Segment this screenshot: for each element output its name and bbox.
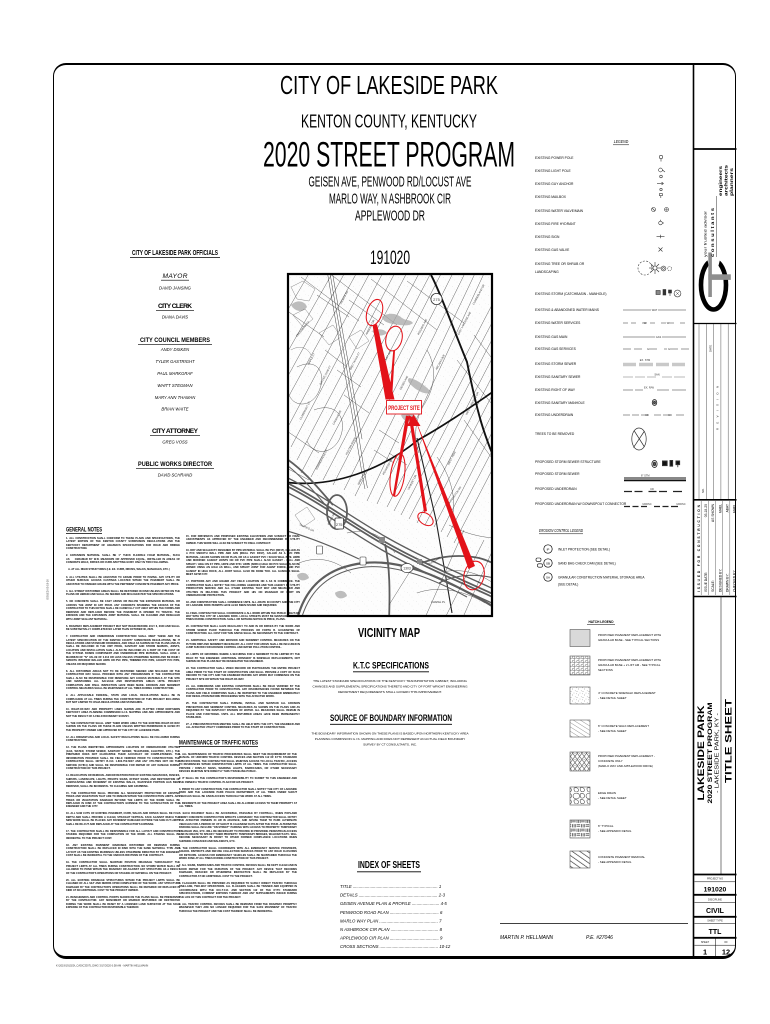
svg-text:EXISTING WATER SERVICES: EXISTING WATER SERVICES (535, 321, 581, 325)
svg-text:(MARLO WAY AND APPLEWOOD DRIVE: (MARLO WAY AND APPLEWOOD DRIVE) (598, 764, 653, 768)
svg-text:GEISEN AVENUE PLAN & PROFILE .: GEISEN AVENUE PLAN & PROFILE ...........… (340, 901, 447, 906)
svg-text:275: 275 (433, 297, 440, 302)
svg-text:SECTIONS: SECTIONS (598, 668, 613, 672)
svg-text:- SEE APPENDIX DETAIL: - SEE APPENDIX DETAIL (598, 860, 632, 864)
svg-text:your trusted advisor: your trusted advisor (704, 210, 708, 257)
svg-text:1: 1 (703, 948, 707, 957)
svg-text:TYLER GASTRIGHT: TYLER GASTRIGHT (155, 359, 195, 364)
svg-text:DETAILS ......................: DETAILS ................................… (340, 893, 446, 898)
svg-text:- SEE DETAIL SHEET: - SEE DETAIL SHEET (598, 796, 627, 800)
svg-text:CIVIL: CIVIL (706, 908, 725, 915)
svg-text:DRAWN BY:: DRAWN BY: (725, 574, 729, 592)
svg-text:PROPOSED PAVEMENT REPLACEMENT: PROPOSED PAVEMENT REPLACEMENT WITH (598, 633, 661, 637)
svg-text:CITY OF LAKESIDE PARK OFFICIAL: CITY OF LAKESIDE PARK OFFICIALS (132, 248, 218, 257)
svg-text:engineers: engineers (718, 165, 723, 196)
svg-text:EXISTING SANITARY SEWER: EXISTING SANITARY SEWER (535, 375, 581, 379)
svg-text:275: 275 (336, 522, 343, 527)
svg-text:EROSION CONTROL LEGEND: EROSION CONTROL LEGEND (539, 528, 583, 533)
svg-text:DEPARTMENT REQUIREMENTS SHALL: DEPARTMENT REQUIREMENTS SHALL GOVERN THI… (338, 690, 442, 694)
svg-text:UD: UD (668, 413, 672, 417)
svg-text:PUBLIC WORKS DIRECTOR: PUBLIC WORKS DIRECTOR (138, 461, 212, 468)
svg-text:- SEE DETAIL SHEET: - SEE DETAIL SHEET (598, 696, 627, 700)
svg-text:THE LATEST STANDARD SPECIFICAT: THE LATEST STANDARD SPECIFICATIONS OF TH… (313, 679, 467, 683)
svg-text:ANDY DISKEN: ANDY DISKEN (160, 347, 190, 352)
svg-text:EXISTING LIGHT POLE: EXISTING LIGHT POLE (535, 169, 571, 173)
svg-text:GRANULAR CONSTRUCTION MATERIAL: GRANULAR CONSTRUCTION MATERIAL STORAGE A… (558, 575, 645, 579)
svg-text:SCALE:: SCALE: (711, 580, 715, 592)
svg-text:UDDSC: UDDSC (676, 502, 685, 506)
svg-text:GENERAL NOTES: GENERAL NOTES (66, 527, 102, 534)
svg-text:TTL: TTL (709, 929, 723, 936)
svg-text:EXISTING SANITARY MANHOLE: EXISTING SANITARY MANHOLE (535, 401, 585, 405)
svg-text:PROJECT NO: PROJECT NO (707, 878, 723, 881)
svg-text:EXISTING STORM SEWER: EXISTING STORM SEWER (535, 362, 577, 366)
svg-text:- SEE DETAIL SHEET: - SEE DETAIL SHEET (598, 729, 627, 733)
svg-text:LANDSCAPING: LANDSCAPING (535, 270, 559, 274)
svg-text:EXISTING WATER VALVE/MAIN: EXISTING WATER VALVE/MAIN (535, 209, 584, 213)
svg-text:GREG VOSS: GREG VOSS (162, 440, 187, 445)
svg-text:THE BOUNDARY INFORMATION SHOWN: THE BOUNDARY INFORMATION SHOWN ON THESE … (311, 732, 469, 736)
svg-text:SAND BAG CHECK DAM (SEE DETAIL: SAND BAG CHECK DAM (SEE DETAIL) (558, 561, 616, 565)
svg-text:6" TYPICAL: 6" TYPICAL (598, 824, 614, 828)
svg-text:MARY ANN THAMAN: MARY ANN THAMAN (155, 395, 197, 400)
svg-text:G: G (647, 347, 649, 351)
svg-text:CITY OF LAKESIDE PARK: CITY OF LAKESIDE PARK (280, 72, 498, 100)
svg-text:G: G (668, 347, 670, 351)
svg-text:UDDSC: UDDSC (642, 502, 651, 506)
svg-text:- SEE APPENDIX DETAIL: - SEE APPENDIX DETAIL (598, 829, 632, 833)
svg-text:KENTON COUNTY, KENTUCKY: KENTON COUNTY, KENTUCKY (301, 111, 477, 132)
svg-text:REVISION: REVISION (716, 386, 720, 430)
svg-text:APPLEWOOD CIR PLAN ...........: APPLEWOOD CIR PLAN .....................… (339, 936, 443, 941)
svg-text:DESIGNED BY:: DESIGNED BY: (718, 569, 722, 592)
svg-text:AS SHOWN: AS SHOWN (711, 503, 715, 522)
svg-text:SHEET TYPE: SHEET TYPE (707, 920, 723, 923)
svg-text:4" CONCRETE SIDEWALK REPLACEME: 4" CONCRETE SIDEWALK REPLACEMENT (598, 691, 656, 695)
svg-text:LAKESIDE PARK: LAKESIDE PARK (696, 705, 706, 801)
svg-text:EXISTING GAS MAIN: EXISTING GAS MAIN (535, 335, 568, 339)
svg-text:GAS: GAS (656, 335, 662, 339)
svg-text:1303: 1303 (403, 567, 411, 571)
svg-text:CONCRETE PAVEMENT REMOVAL: CONCRETE PAVEMENT REMOVAL (598, 855, 646, 859)
svg-text:EX. R/W: EX. R/W (644, 385, 654, 389)
svg-text:EXISTING STORM (CATCHBASIN - M: EXISTING STORM (CATCHBASIN - MANHOLE) (535, 292, 607, 296)
svg-text:PENWOOD ROAD PLAN ............: PENWOOD ROAD PLAN ......................… (340, 910, 443, 915)
svg-text:GRANULAR BASE + 2 LIFT AM - SE: GRANULAR BASE + 2 LIFT AM - SEE TYPICAL (598, 663, 661, 667)
svg-text:SHEET: SHEET (701, 941, 710, 944)
svg-text:EXISTING & ABANDONED WATER MAI: EXISTING & ABANDONED WATER MAINS (535, 308, 600, 312)
svg-text:PROPOSED UNDERDRAIN W/ DOWNSPO: PROPOSED UNDERDRAIN W/ DOWNSPOUT CONNECT… (535, 502, 627, 506)
svg-text:APPLEWOOD DR: APPLEWOOD DR (355, 209, 425, 225)
svg-text:EXISTING FIRE HYDRANT: EXISTING FIRE HYDRANT (535, 222, 576, 226)
svg-text:8" STM: 8" STM (641, 473, 650, 477)
svg-text:EXISTING GAS VALVE: EXISTING GAS VALVE (535, 248, 570, 252)
svg-text:ISSUED FOR CONSTRUCTION: ISSUED FOR CONSTRUCTION (697, 504, 701, 592)
svg-text:CITY COUNCIL MEMBERS: CITY COUNCIL MEMBERS (140, 337, 211, 344)
svg-text:SA: SA (546, 575, 550, 579)
svg-text:MAYOR: MAYOR (163, 273, 188, 280)
svg-text:6" CONCRETE WALK REPLACEMENT: 6" CONCRETE WALK REPLACEMENT (598, 724, 649, 728)
svg-text:PROPOSED STORM SEWER STRUCTURE: PROPOSED STORM SEWER STRUCTURE (535, 460, 602, 464)
svg-text:BRIAN WAITE: BRIAN WAITE (161, 407, 188, 412)
svg-text:EXISTING UNDERDRAIN: EXISTING UNDERDRAIN (535, 413, 574, 417)
svg-text:EXISTING POWER POLE: EXISTING POWER POLE (535, 156, 574, 160)
svg-text:DAVID SCHRAND: DAVID SCHRAND (158, 473, 192, 478)
svg-text:EXISTING RIGHT OF WAY: EXISTING RIGHT OF WAY (535, 388, 576, 392)
svg-text:P.E. #27046: P.E. #27046 (586, 935, 613, 941)
svg-text:DIANA DAVIS: DIANA DAVIS (162, 315, 188, 320)
svg-text:WAT: WAT (652, 308, 658, 312)
svg-text:c o n s u l t a n t s: c o n s u l t a n t s (710, 207, 715, 257)
svg-text:TITLE ........................: TITLE ..................................… (340, 884, 442, 889)
svg-text:CITY CLERK: CITY CLERK (158, 303, 192, 310)
svg-text:SURVEY BY CT CONSULTANTS, INC.: SURVEY BY CT CONSULTANTS, INC. (363, 743, 417, 747)
svg-text:EXISTING GAS SERVICES: EXISTING GAS SERVICES (535, 347, 577, 351)
svg-text:PLANNING COMMISSION G.I.S. MAP: PLANNING COMMISSION G.I.S. MAPPING AND D… (315, 737, 465, 741)
svg-text:EXISTING MAILBOX: EXISTING MAILBOX (535, 195, 567, 199)
svg-text:MARLO WAY PLAN ...............: MARLO WAY PLAN .........................… (340, 918, 442, 923)
svg-text:EXISTING GUY ANCHOR: EXISTING GUY ANCHOR (535, 182, 574, 186)
svg-text:DAVID JANSING: DAVID JANSING (159, 286, 192, 291)
svg-text:DATE: DATE (708, 345, 712, 352)
svg-text:planners: planners (729, 167, 734, 196)
svg-text:ISSUED 03-18-20: ISSUED 03-18-20 (46, 579, 50, 600)
svg-text:PROPOSED STORM SEWER: PROPOSED STORM SEWER (535, 472, 580, 476)
svg-text:CHAPEL PL: CHAPEL PL (431, 600, 446, 604)
svg-text:- LAKESIDE PARK, KY -: - LAKESIDE PARK, KY - (714, 713, 720, 793)
svg-text:SB: SB (546, 561, 550, 565)
svg-text:CHECKED BY:: CHECKED BY: (733, 570, 737, 592)
svg-text:TITLE SHEET: TITLE SHEET (724, 698, 734, 783)
svg-text:INLET PROTECTION (SEE DETAIL): INLET PROTECTION (SEE DETAIL) (558, 547, 610, 551)
svg-text:OF: OF (724, 941, 728, 944)
svg-text:N ASHBROOK CIR PLAN ..........: N ASHBROOK CIR PLAN ....................… (340, 927, 443, 932)
svg-text:2020 STREET PROGRAM: 2020 STREET PROGRAM (707, 702, 714, 804)
svg-text:EDGE DRAIN: EDGE DRAIN (598, 791, 616, 795)
svg-text:SAN: SAN (654, 373, 659, 377)
svg-text:191020: 191020 (370, 248, 410, 269)
svg-text:K.T.C SPECIFICATIONS: K.T.C SPECIFICATIONS (353, 661, 429, 671)
svg-text:HATCH LEGEND: HATCH LEGEND (589, 619, 614, 624)
svg-text:EX. STM: EX. STM (640, 358, 650, 362)
svg-text:UD: UD (645, 413, 649, 417)
svg-text:MHEL: MHEL (718, 504, 722, 513)
svg-text:VICINITY MAP: VICINITY MAP (358, 626, 420, 640)
svg-text:DISCIPLINE: DISCIPLINE (708, 898, 722, 901)
svg-text:PROPOSED PAVEMENT REPLACEMENT: PROPOSED PAVEMENT REPLACEMENT WITH (598, 658, 661, 662)
svg-text:PROJECT SITE: PROJECT SITE (388, 405, 420, 412)
svg-text:IP: IP (547, 547, 550, 551)
svg-text:INDEX OF SHEETS: INDEX OF SHEETS (358, 860, 420, 871)
svg-text:ISSUE DATE:: ISSUE DATE: (704, 572, 708, 592)
svg-text:CROSS SECTIONS ...............: CROSS SECTIONS .........................… (340, 944, 451, 949)
svg-text:191020: 191020 (704, 886, 727, 893)
svg-text:K:\2019\191020\_CAD\C3D\TL.DWG: K:\2019\191020\_CAD\C3D\TL.DWG 3/17/2020… (56, 964, 148, 968)
svg-text:12: 12 (722, 948, 730, 957)
svg-text:PAUL MARKGRAF: PAUL MARKGRAF (157, 371, 193, 376)
svg-text:GRANULAR BASE - SEE TYPICAL: GRANULAR BASE - SEE TYPICAL SECTIONS (598, 638, 659, 642)
svg-text:LEGEND: LEGEND (614, 139, 629, 144)
svg-text:NO.: NO. (701, 488, 705, 493)
svg-text:03-18-20: 03-18-20 (704, 504, 708, 517)
svg-text:CHANGES AND SUPPLEMENTAL SPECI: CHANGES AND SUPPLEMENTAL SPECIFICATIONS … (313, 685, 469, 689)
svg-text:MARTIN P. HELLMANN: MARTIN P. HELLMANN (500, 935, 554, 941)
svg-text:CITY ATTORNEY: CITY ATTORNEY (152, 428, 199, 435)
svg-text:SOURCE OF BOUNDARY INFORMATION: SOURCE OF BOUNDARY INFORMATION (330, 713, 452, 723)
svg-text:UD: UD (650, 487, 654, 491)
svg-text:EXISTING SIGN: EXISTING SIGN (535, 235, 560, 239)
svg-text:PROPOSED UNDERDRAIN: PROPOSED UNDERDRAIN (535, 487, 577, 491)
svg-text:2020 STREET PROGRAM: 2020 STREET PROGRAM (263, 136, 515, 175)
svg-text:(SEE DETAIL): (SEE DETAIL) (558, 583, 578, 587)
svg-text:PROPOSED PAVEMENT REPLACEMENT: PROPOSED PAVEMENT REPLACEMENT - (598, 754, 655, 758)
svg-text:WHITT STEGMAN: WHITT STEGMAN (157, 383, 193, 388)
svg-text:MAINTENANCE OF TRAFFIC NOTES: MAINTENANCE OF TRAFFIC NOTES (179, 740, 259, 747)
svg-text:GEISEN AVE, PENWOOD RD/LOCUST: GEISEN AVE, PENWOOD RD/LOCUST AVE (309, 175, 472, 191)
svg-text:TREES TO BE REMOVED: TREES TO BE REMOVED (535, 432, 575, 436)
svg-text:MHEL: MHEL (733, 504, 737, 513)
svg-text:MARLO WAY, N ASHBROOK CIR: MARLO WAY, N ASHBROOK CIR (329, 192, 451, 208)
svg-text:architects: architects (724, 164, 729, 196)
svg-text:CONCRETE ONLY: CONCRETE ONLY (598, 759, 623, 763)
svg-text:ABAT: ABAT (725, 504, 729, 512)
svg-text:EXISTING TREE OR SHRUB OR: EXISTING TREE OR SHRUB OR (535, 262, 585, 266)
